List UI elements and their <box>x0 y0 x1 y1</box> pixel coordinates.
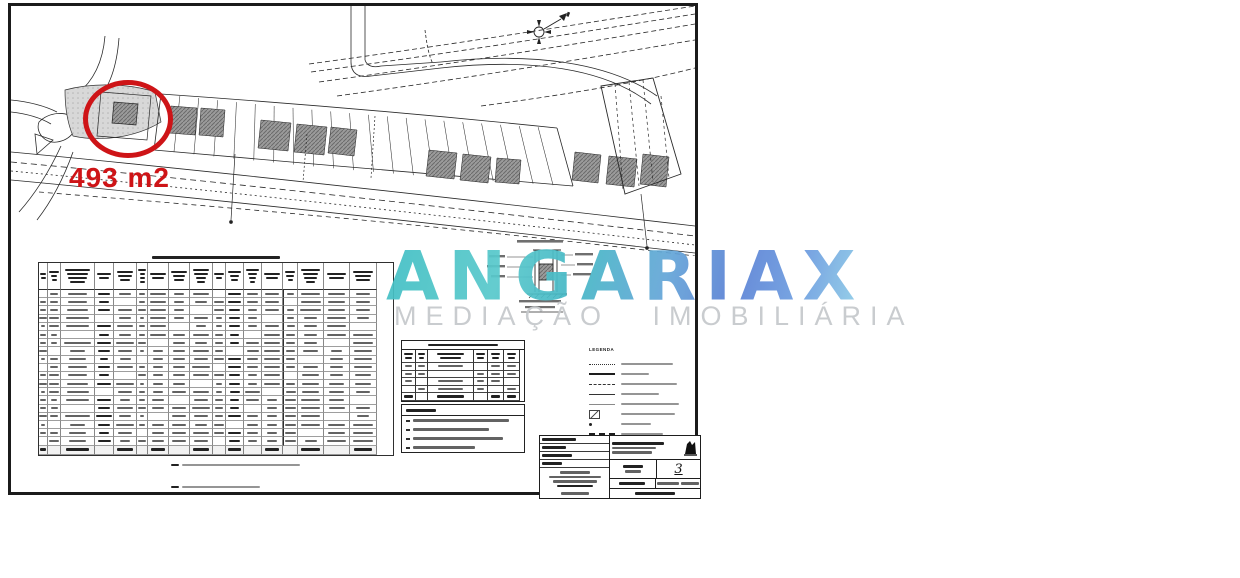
table-cell <box>350 347 377 355</box>
table-cell <box>244 405 262 413</box>
table-cell <box>262 421 283 429</box>
table-cell <box>213 437 226 445</box>
table-cell <box>298 380 324 388</box>
table-cell <box>226 429 244 437</box>
table-cell <box>283 290 298 298</box>
table-cell <box>190 396 213 404</box>
table-cell <box>213 323 226 331</box>
table-cell <box>350 364 377 372</box>
table-cell <box>190 323 213 331</box>
table-cell <box>283 421 298 429</box>
table-cell <box>213 331 226 339</box>
quadro-header-cell <box>488 350 504 363</box>
table-cell <box>48 356 61 364</box>
table-cell <box>39 396 48 404</box>
table-cell <box>48 396 61 404</box>
table-cell <box>262 446 283 455</box>
area-label: 493 m2 <box>69 162 170 194</box>
table-row <box>39 405 393 413</box>
table-cell <box>213 405 226 413</box>
table-cell <box>350 446 377 455</box>
table-cell <box>226 315 244 323</box>
table-cell <box>48 315 61 323</box>
plan-sheet: LEGENDA <box>8 3 698 495</box>
table-row <box>39 421 393 429</box>
table-row <box>39 298 393 306</box>
table-cell <box>48 306 61 314</box>
table-footnotes <box>171 456 300 497</box>
table-cell <box>95 331 114 339</box>
quadro-cell <box>474 393 488 401</box>
legend-symbol <box>589 423 615 426</box>
table-cell <box>298 356 324 364</box>
quadro-cell <box>416 363 428 371</box>
table-cell <box>324 396 350 404</box>
table-row <box>39 413 393 421</box>
table-cell <box>61 429 95 437</box>
table-cell <box>226 437 244 445</box>
table-cell <box>148 364 169 372</box>
table-header-cell <box>350 263 377 290</box>
table-cell <box>148 315 169 323</box>
table-cell <box>137 356 148 364</box>
table-cell <box>95 372 114 380</box>
table-cell <box>324 331 350 339</box>
table-cell <box>39 413 48 421</box>
legend-entry <box>589 369 689 379</box>
table-cell <box>169 298 190 306</box>
table-cell <box>350 429 377 437</box>
table-cell <box>48 421 61 429</box>
legend: LEGENDA <box>589 347 689 439</box>
table-cell <box>298 331 324 339</box>
table-cell <box>350 323 377 331</box>
table-cell <box>283 364 298 372</box>
table-cell <box>324 298 350 306</box>
legend-entry <box>589 379 689 389</box>
quadro-cell <box>488 378 504 386</box>
table-cell <box>244 290 262 298</box>
table-cell <box>298 437 324 445</box>
table-cell <box>137 347 148 355</box>
table-cell <box>298 396 324 404</box>
table-row <box>39 306 393 314</box>
table-cell <box>262 315 283 323</box>
table-cell <box>262 356 283 364</box>
quadro-cell <box>504 393 520 401</box>
quadro-cell <box>474 378 488 386</box>
table-cell <box>95 315 114 323</box>
table-cell <box>148 290 169 298</box>
table-cell <box>95 306 114 314</box>
table-cell <box>213 290 226 298</box>
table-row <box>39 356 393 364</box>
table-cell <box>39 421 48 429</box>
table-cell <box>114 437 137 445</box>
table-cell <box>350 380 377 388</box>
table-cell <box>148 413 169 421</box>
table-cell <box>190 290 213 298</box>
table-cell <box>283 380 298 388</box>
quadro-cell <box>402 371 416 379</box>
table-cell <box>137 290 148 298</box>
table-cell <box>244 388 262 396</box>
table-cell <box>39 405 48 413</box>
quadro-cell <box>488 363 504 371</box>
table-cell <box>262 413 283 421</box>
legend-entry <box>589 409 689 419</box>
table-cell <box>350 413 377 421</box>
table-cell <box>244 372 262 380</box>
table-title <box>38 253 394 262</box>
table-header-cell <box>61 263 95 290</box>
table-cell <box>213 446 226 455</box>
table-cell <box>262 429 283 437</box>
table-cell <box>262 364 283 372</box>
table-header-cell <box>324 263 350 290</box>
table-cell <box>95 290 114 298</box>
table-cell <box>39 298 48 306</box>
table-cell <box>169 405 190 413</box>
table-cell <box>244 339 262 347</box>
table-cell <box>190 347 213 355</box>
table-cell <box>190 331 213 339</box>
table-header-cell <box>137 263 148 290</box>
table-cell <box>48 331 61 339</box>
table-cell <box>39 356 48 364</box>
table-cell <box>283 298 298 306</box>
table-cell <box>324 388 350 396</box>
title-block-footer <box>610 489 700 498</box>
table-cell <box>350 290 377 298</box>
quadro-cell <box>416 371 428 379</box>
table-cell <box>39 388 48 396</box>
table-cell <box>169 429 190 437</box>
table-cell <box>298 372 324 380</box>
table-cell <box>213 372 226 380</box>
table-cell <box>48 339 61 347</box>
table-cell <box>262 323 283 331</box>
table-cell <box>244 356 262 364</box>
table-cell <box>137 298 148 306</box>
table-cell <box>61 364 95 372</box>
table-header-cell <box>226 263 244 290</box>
table-cell <box>213 364 226 372</box>
table-cell <box>226 413 244 421</box>
table-cell <box>324 290 350 298</box>
summary-quadro-table <box>401 340 525 402</box>
table-cell <box>169 446 190 455</box>
table-cell <box>244 306 262 314</box>
table-cell <box>324 323 350 331</box>
table-cell <box>114 396 137 404</box>
table-cell <box>39 347 48 355</box>
table-cell <box>137 421 148 429</box>
table-header-cell <box>39 263 48 290</box>
quadro-cell <box>402 393 416 401</box>
table-cell <box>148 372 169 380</box>
table-cell <box>114 323 137 331</box>
table-cell <box>137 429 148 437</box>
table-header-cell <box>114 263 137 290</box>
table-cell <box>95 388 114 396</box>
table-cell <box>169 339 190 347</box>
table-cell <box>148 405 169 413</box>
table-cell <box>95 429 114 437</box>
table-cell <box>137 315 148 323</box>
table-cell <box>39 364 48 372</box>
table-cell <box>148 331 169 339</box>
table-header-cell <box>95 263 114 290</box>
table-cell <box>190 446 213 455</box>
quadro-cell <box>428 363 474 371</box>
table-cell <box>169 290 190 298</box>
table-header-cell <box>283 263 298 290</box>
table-cell <box>137 339 148 347</box>
table-cell <box>350 437 377 445</box>
table-cell <box>61 380 95 388</box>
highlight-circle <box>83 80 173 158</box>
note-line <box>402 434 524 443</box>
table-cell <box>61 315 95 323</box>
quadro-cell <box>428 378 474 386</box>
quadro-cell <box>504 378 520 386</box>
quadro-cell <box>488 386 504 394</box>
table-cell <box>190 380 213 388</box>
legend-symbol <box>589 373 615 375</box>
table-cell <box>244 396 262 404</box>
table-cell <box>148 356 169 364</box>
table-cell <box>48 446 61 455</box>
table-cell <box>95 298 114 306</box>
table-cell <box>213 306 226 314</box>
table-cell <box>114 421 137 429</box>
table-cell <box>95 421 114 429</box>
table-cell <box>95 323 114 331</box>
scale-field <box>610 460 657 478</box>
footnote-line <box>171 456 300 474</box>
table-cell <box>190 315 213 323</box>
quadro-header-cell <box>504 350 520 363</box>
table-cell <box>298 405 324 413</box>
table-cell <box>39 446 48 455</box>
table-cell <box>148 421 169 429</box>
table-row <box>39 315 393 323</box>
table-cell <box>137 380 148 388</box>
table-cell <box>324 380 350 388</box>
quadro-cell <box>474 363 488 371</box>
quadro-row <box>402 386 524 394</box>
table-header-cell <box>169 263 190 290</box>
table-cell <box>95 396 114 404</box>
dashed-road-arcs <box>309 6 695 106</box>
table-cell <box>262 388 283 396</box>
table-cell <box>262 372 283 380</box>
table-cell <box>39 306 48 314</box>
table-cell <box>190 405 213 413</box>
table-header-cell <box>298 263 324 290</box>
table-row <box>39 364 393 372</box>
table-cell <box>169 306 190 314</box>
table-cell <box>148 429 169 437</box>
table-cell <box>226 323 244 331</box>
table-cell <box>262 339 283 347</box>
table-cell <box>114 380 137 388</box>
table-cell <box>48 437 61 445</box>
project-description <box>540 468 609 498</box>
quadro-cell <box>402 378 416 386</box>
table-cell <box>324 372 350 380</box>
table-cell <box>137 446 148 455</box>
table-cell <box>350 405 377 413</box>
legend-entry <box>589 359 689 369</box>
table-cell <box>61 298 95 306</box>
table-cell <box>226 446 244 455</box>
table-cell <box>298 429 324 437</box>
table-cell <box>244 315 262 323</box>
table-cell <box>95 339 114 347</box>
quadro-cell <box>474 386 488 394</box>
table-cell <box>298 446 324 455</box>
table-cell <box>61 347 95 355</box>
legend-title: LEGENDA <box>589 347 679 352</box>
table-cell <box>283 429 298 437</box>
table-cell <box>114 364 137 372</box>
table-cell <box>213 315 226 323</box>
table-header-cell <box>48 263 61 290</box>
table-cell <box>169 421 190 429</box>
date-fields <box>610 479 700 489</box>
table-row <box>39 388 393 396</box>
table-cell <box>137 306 148 314</box>
quadro-cell <box>416 378 428 386</box>
table-cell <box>213 298 226 306</box>
note-line <box>402 416 524 425</box>
table-cell <box>39 339 48 347</box>
table-row <box>39 347 393 355</box>
table-cell <box>244 437 262 445</box>
table-cell <box>148 446 169 455</box>
table-cell <box>283 356 298 364</box>
table-cell <box>244 347 262 355</box>
table-cell <box>61 323 95 331</box>
table-cell <box>213 421 226 429</box>
table-cell <box>213 380 226 388</box>
table-cell <box>114 446 137 455</box>
table-row <box>39 437 393 445</box>
table-cell <box>190 339 213 347</box>
table-cell <box>48 364 61 372</box>
table-cell <box>298 306 324 314</box>
table-row <box>39 323 393 331</box>
table-cell <box>244 413 262 421</box>
table-cell <box>137 396 148 404</box>
table-cell <box>298 388 324 396</box>
table-cell <box>244 323 262 331</box>
table-cell <box>61 306 95 314</box>
table-cell <box>226 298 244 306</box>
table-header-cell <box>262 263 283 290</box>
table-cell <box>262 331 283 339</box>
authority-name <box>612 442 681 454</box>
note-line <box>402 425 524 434</box>
table-cell <box>148 396 169 404</box>
table-cell <box>148 323 169 331</box>
table-cell <box>226 347 244 355</box>
table-cell <box>298 347 324 355</box>
table-cell <box>213 413 226 421</box>
table-cell <box>114 331 137 339</box>
table-cell <box>169 356 190 364</box>
table-cell <box>169 331 190 339</box>
table-cell <box>190 437 213 445</box>
table-row <box>39 372 393 380</box>
table-cell <box>48 388 61 396</box>
table-cell <box>39 429 48 437</box>
table-cell <box>137 405 148 413</box>
table-cell <box>324 405 350 413</box>
table-cell <box>169 364 190 372</box>
table-cell <box>114 306 137 314</box>
table-cell <box>190 388 213 396</box>
footnote-line <box>171 479 300 497</box>
legend-symbol <box>589 364 615 365</box>
table-cell <box>350 421 377 429</box>
table-cell <box>298 298 324 306</box>
table-cell <box>350 372 377 380</box>
table-cell <box>48 372 61 380</box>
table-cell <box>39 290 48 298</box>
quadro-cell <box>428 371 474 379</box>
quadro-cell <box>488 371 504 379</box>
table-cell <box>283 372 298 380</box>
table-cell <box>283 339 298 347</box>
table-cell <box>213 388 226 396</box>
quadro-cell <box>428 386 474 394</box>
table-cell <box>114 405 137 413</box>
table-cell <box>169 372 190 380</box>
table-cell <box>148 347 169 355</box>
table-cell <box>226 380 244 388</box>
quadro-title <box>402 341 524 350</box>
table-cell <box>298 290 324 298</box>
table-header-cell <box>148 263 169 290</box>
table-cell <box>61 372 95 380</box>
table-cell <box>298 315 324 323</box>
table-cell <box>213 429 226 437</box>
table-cell <box>283 413 298 421</box>
table-cell <box>213 347 226 355</box>
table-cell <box>114 298 137 306</box>
legend-entry <box>589 419 689 429</box>
table-cell <box>95 347 114 355</box>
table-cell <box>61 356 95 364</box>
table-cell <box>226 388 244 396</box>
table-cell <box>324 413 350 421</box>
table-cell <box>350 396 377 404</box>
table-cell <box>39 437 48 445</box>
table-cell <box>95 413 114 421</box>
table-cell <box>61 290 95 298</box>
table-row <box>39 290 393 298</box>
table-cell <box>226 396 244 404</box>
table-cell <box>262 298 283 306</box>
quadro-cell <box>416 393 428 401</box>
table-cell <box>244 429 262 437</box>
table-cell <box>262 437 283 445</box>
table-cell <box>324 339 350 347</box>
quadro-cell <box>504 371 520 379</box>
